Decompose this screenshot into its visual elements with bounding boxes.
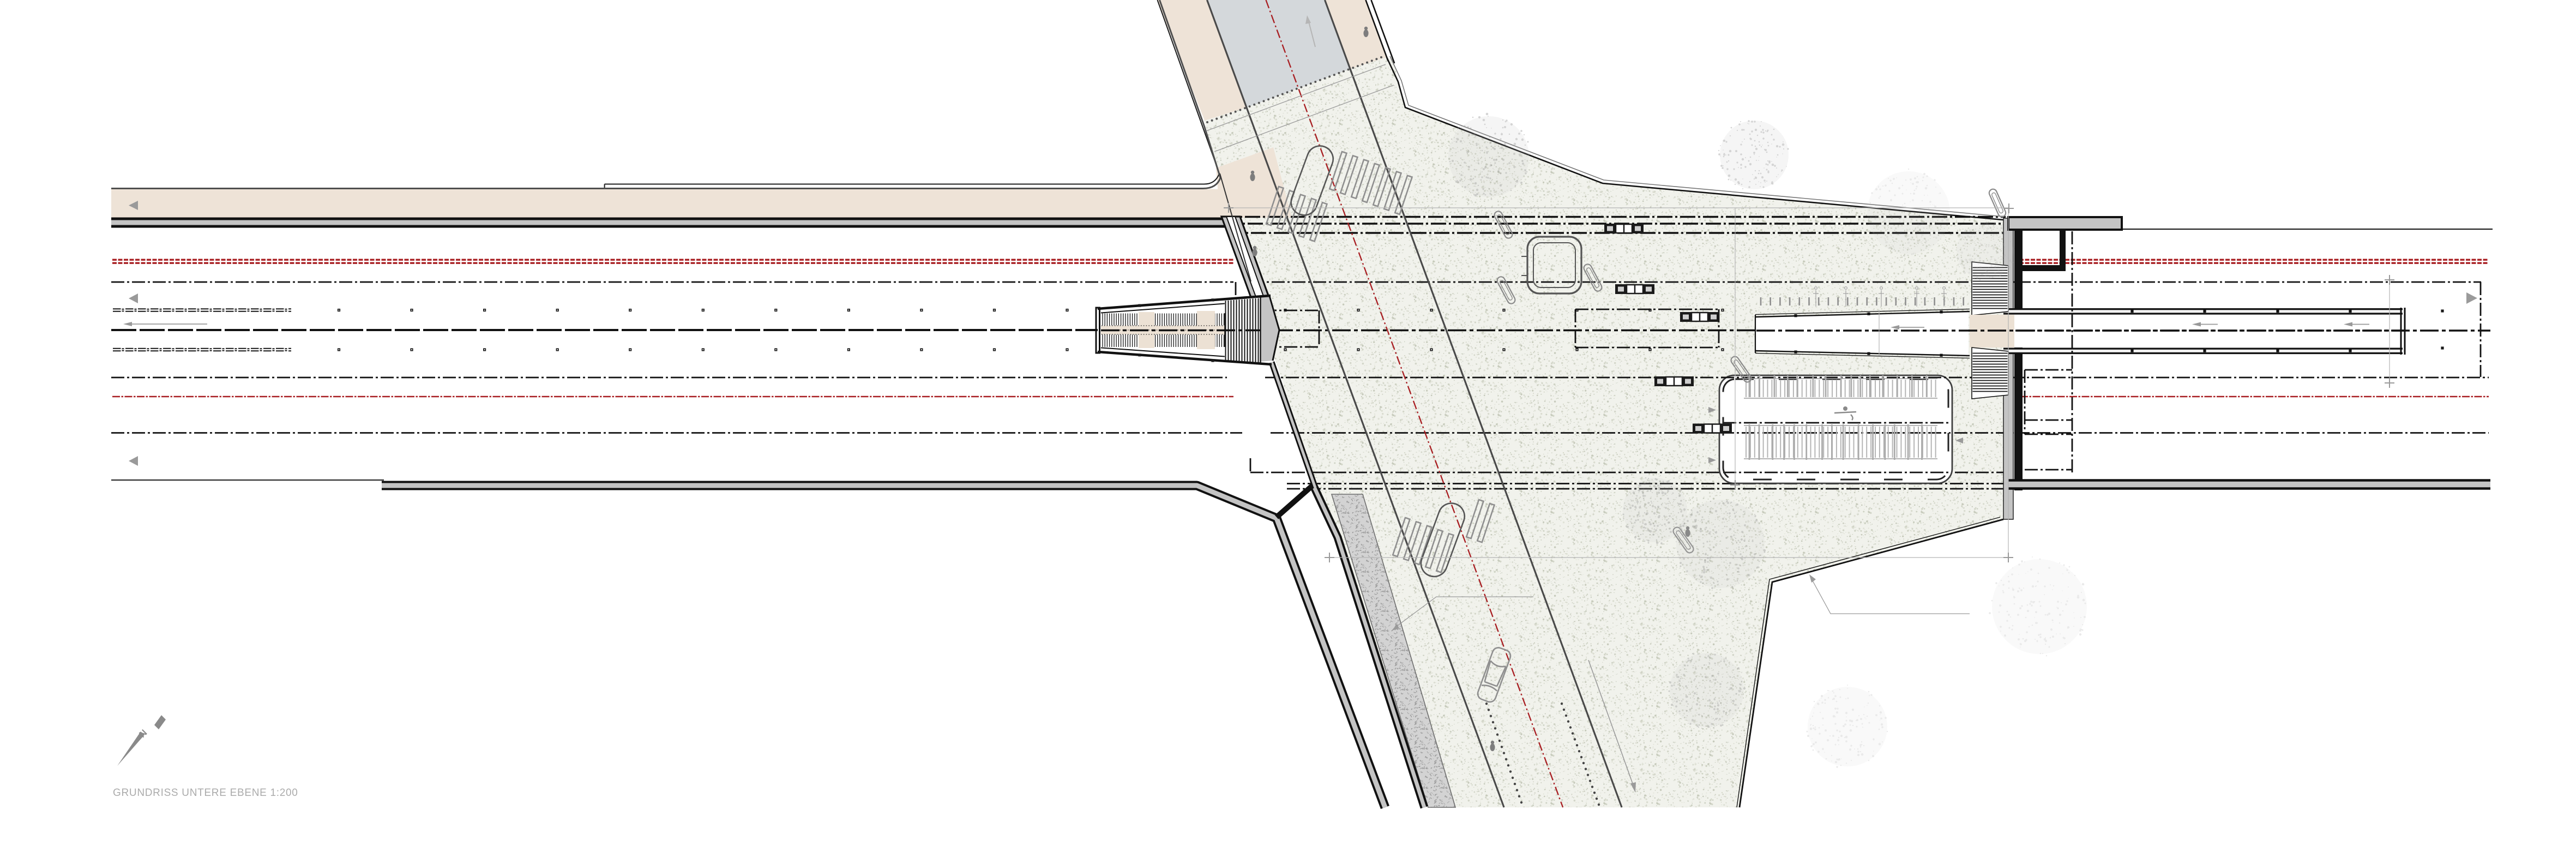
svg-text:GRUNDRISS UNTERE EBENE 1:200: GRUNDRISS UNTERE EBENE 1:200 bbox=[113, 787, 298, 799]
